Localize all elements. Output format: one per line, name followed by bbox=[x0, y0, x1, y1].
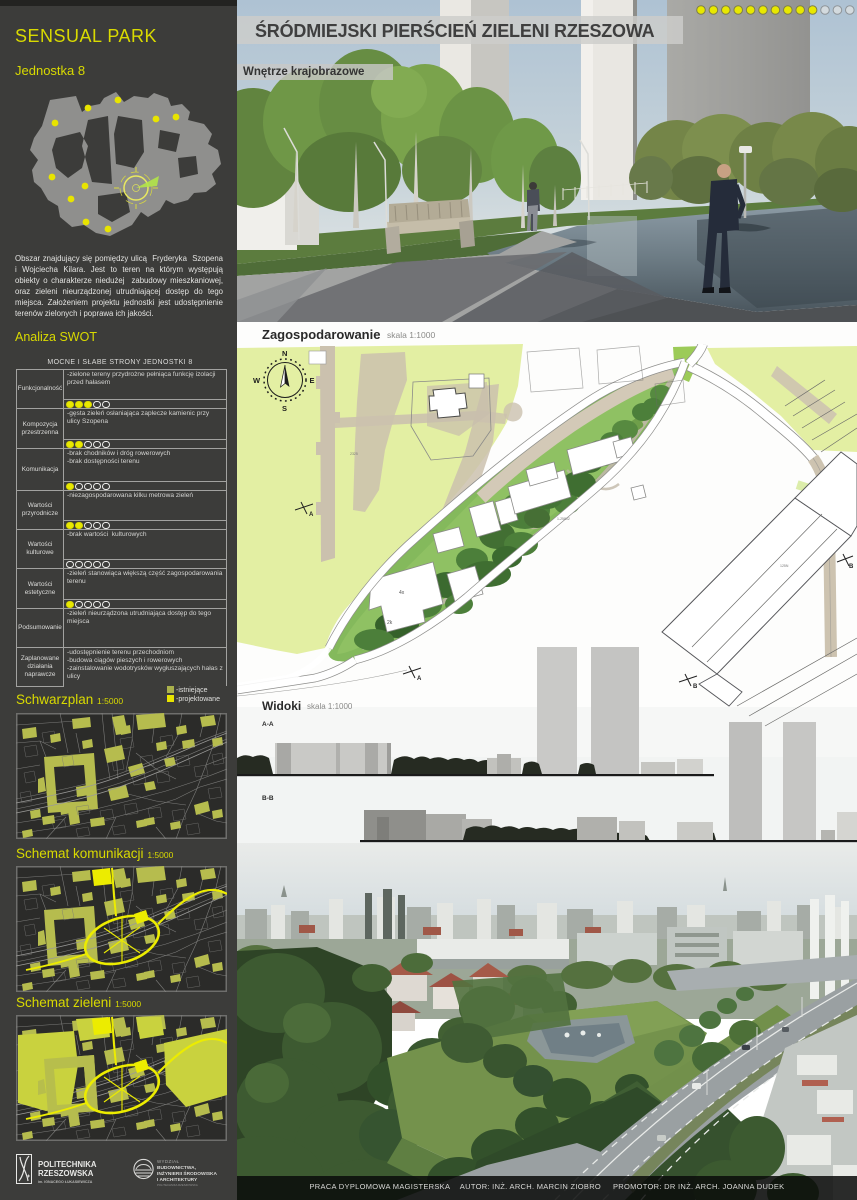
svg-text:skala 1:1000: skala 1:1000 bbox=[387, 330, 435, 340]
svg-text:INŻYNIERII ŚRODOWISKA: INŻYNIERII ŚRODOWISKA bbox=[157, 1170, 217, 1177]
svg-text:B: B bbox=[693, 684, 698, 690]
svg-text:skala 1:1000: skala 1:1000 bbox=[307, 702, 353, 711]
svg-text:POLITECHNIKA RZESZOWSKA: POLITECHNIKA RZESZOWSKA bbox=[157, 1183, 198, 1187]
svg-text:B: B bbox=[849, 564, 854, 570]
svg-text:BUDOWNICTWA,: BUDOWNICTWA, bbox=[157, 1165, 197, 1171]
svg-text:RZESZOWSKA: RZESZOWSKA bbox=[38, 1169, 94, 1178]
svg-text:125N: 125N bbox=[780, 564, 789, 568]
svg-text:W: W bbox=[253, 376, 261, 385]
svg-text:2325: 2325 bbox=[350, 452, 358, 456]
svg-text:E: E bbox=[310, 376, 315, 385]
svg-text:1-25802: 1-25802 bbox=[557, 517, 570, 521]
svg-text:Widoki: Widoki bbox=[262, 699, 301, 713]
svg-text:A-A: A-A bbox=[262, 721, 274, 728]
svg-text:POLITECHNIKA: POLITECHNIKA bbox=[38, 1160, 97, 1169]
svg-text:im. IGNACEGO ŁUKASIEWICZA: im. IGNACEGO ŁUKASIEWICZA bbox=[38, 1180, 93, 1184]
svg-text:WYDZIAŁ: WYDZIAŁ bbox=[157, 1159, 179, 1164]
svg-text:Zagospodarowanie: Zagospodarowanie bbox=[262, 327, 380, 342]
svg-text:B-B: B-B bbox=[262, 795, 274, 802]
svg-text:S: S bbox=[282, 404, 287, 413]
svg-text:4x: 4x bbox=[399, 590, 405, 596]
svg-text:N: N bbox=[282, 349, 287, 358]
svg-text:A: A bbox=[417, 676, 422, 682]
svg-text:2k: 2k bbox=[387, 620, 393, 626]
svg-text:A: A bbox=[309, 512, 314, 518]
